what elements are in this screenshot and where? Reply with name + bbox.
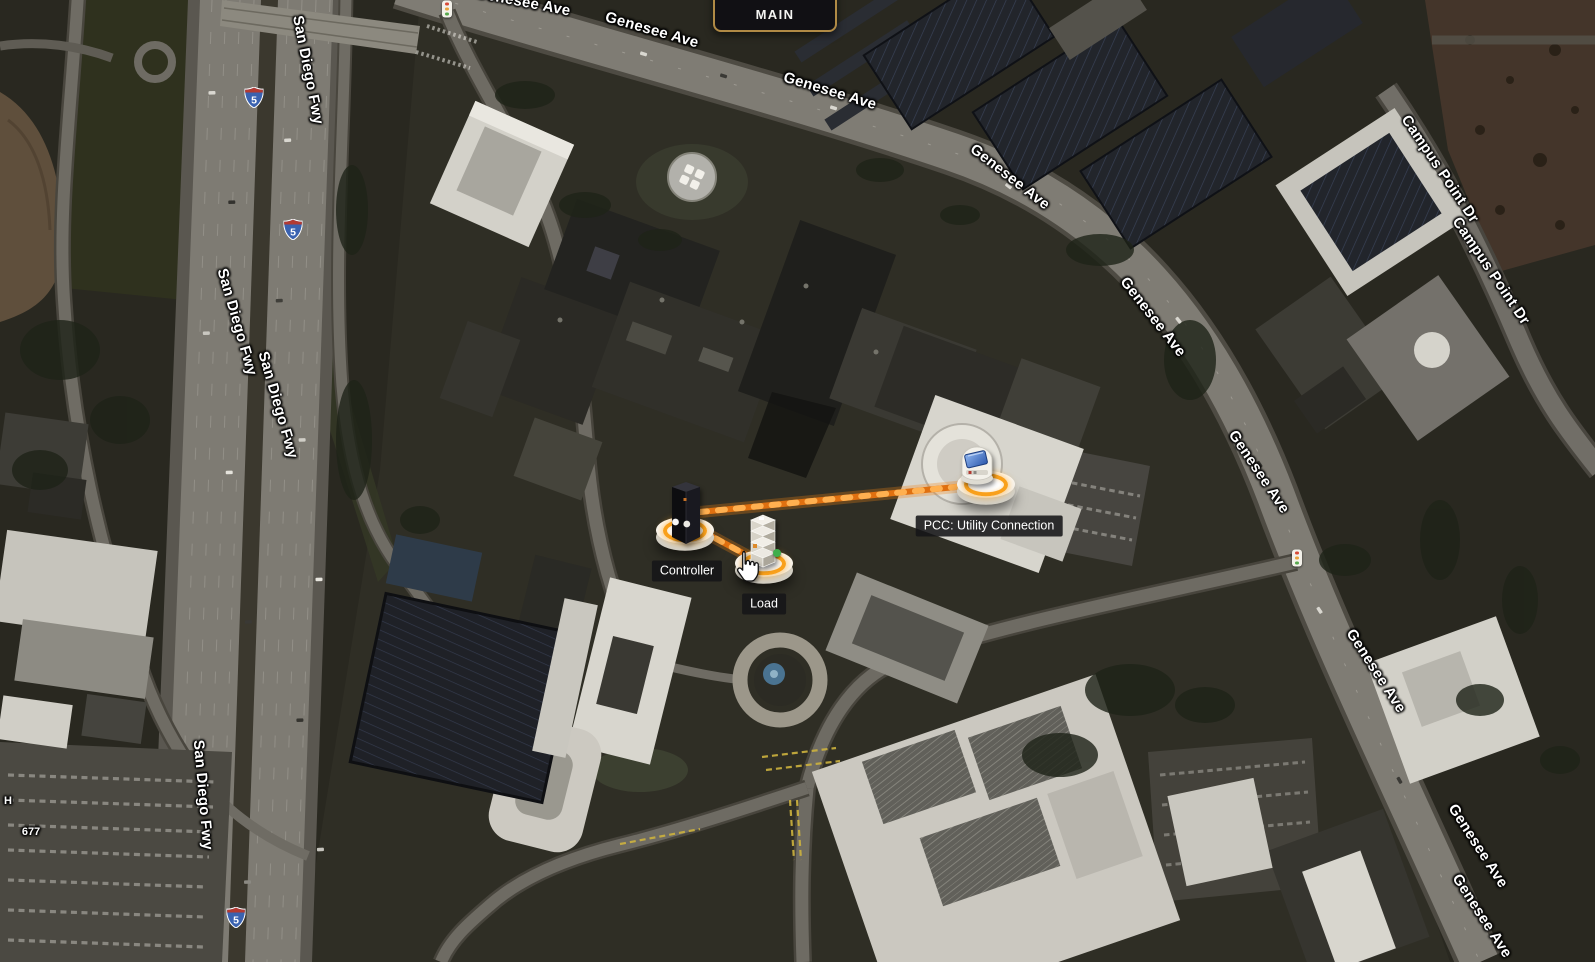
hand-cursor-icon bbox=[733, 549, 761, 583]
traffic-light-icon bbox=[1292, 550, 1302, 567]
node-main[interactable]: MAIN bbox=[713, 0, 837, 32]
satellite-imagery bbox=[0, 0, 1595, 962]
svg-text:5: 5 bbox=[233, 914, 239, 926]
interstate-5-shield-icon: 5 bbox=[245, 87, 264, 113]
map-label: H bbox=[4, 795, 12, 807]
main-node-label: MAIN bbox=[756, 7, 795, 22]
microgrid-map-app: Genesee AveGenesee AveGenesee AveGenesee… bbox=[0, 0, 1595, 962]
load-status-dot bbox=[773, 549, 781, 557]
interstate-5-shield-icon: 5 bbox=[284, 219, 303, 245]
interstate-5-shield-icon: 5 bbox=[227, 907, 246, 933]
map-label: 677 bbox=[22, 826, 40, 838]
traffic-light-icon bbox=[442, 1, 452, 18]
map-canvas[interactable] bbox=[0, 0, 1595, 962]
svg-text:5: 5 bbox=[290, 226, 296, 238]
svg-text:5: 5 bbox=[251, 94, 257, 106]
